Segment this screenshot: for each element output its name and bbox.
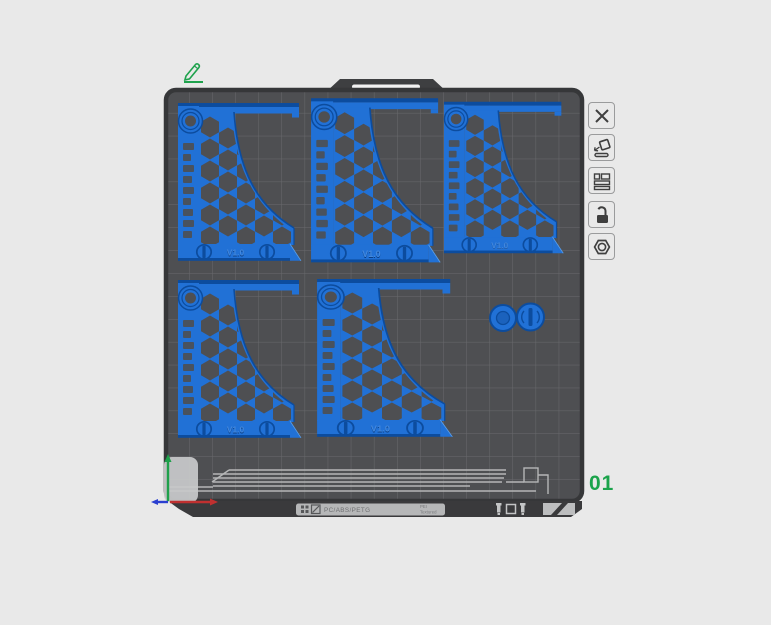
pencil-icon [180,55,208,85]
knob-model-2[interactable] [517,304,544,331]
delete-plate-button[interactable] [588,102,615,129]
z-axis-arrow [151,499,158,505]
plate-side-text-1: PEI [420,504,427,509]
layout-icon [591,170,613,192]
plate-settings-button[interactable] [588,233,615,260]
edit-plate-name-button[interactable] [180,55,208,85]
close-icon [592,106,612,126]
lock-open-icon [591,204,613,226]
viewport-3d[interactable]: V1.0 V1.0 PC/ABS/PETG PEI Textured [0,0,771,625]
plate-materials-text: PC/ABS/PETG [324,507,370,514]
auto-orient-button[interactable] [588,134,615,161]
lock-plate-button[interactable] [588,201,615,228]
build-plate-scene: V1.0 V1.0 PC/ABS/PETG PEI Textured [0,0,771,625]
knob-model-1[interactable] [490,305,516,331]
plate-number: 01 [589,472,614,496]
plate-side-text-2: Textured [420,510,437,515]
hex-nut-icon [591,236,613,258]
plate-edge-label: PC/ABS/PETG PEI Textured [168,501,582,517]
orient-icon [591,137,613,159]
arrange-plate-button[interactable] [588,167,615,194]
